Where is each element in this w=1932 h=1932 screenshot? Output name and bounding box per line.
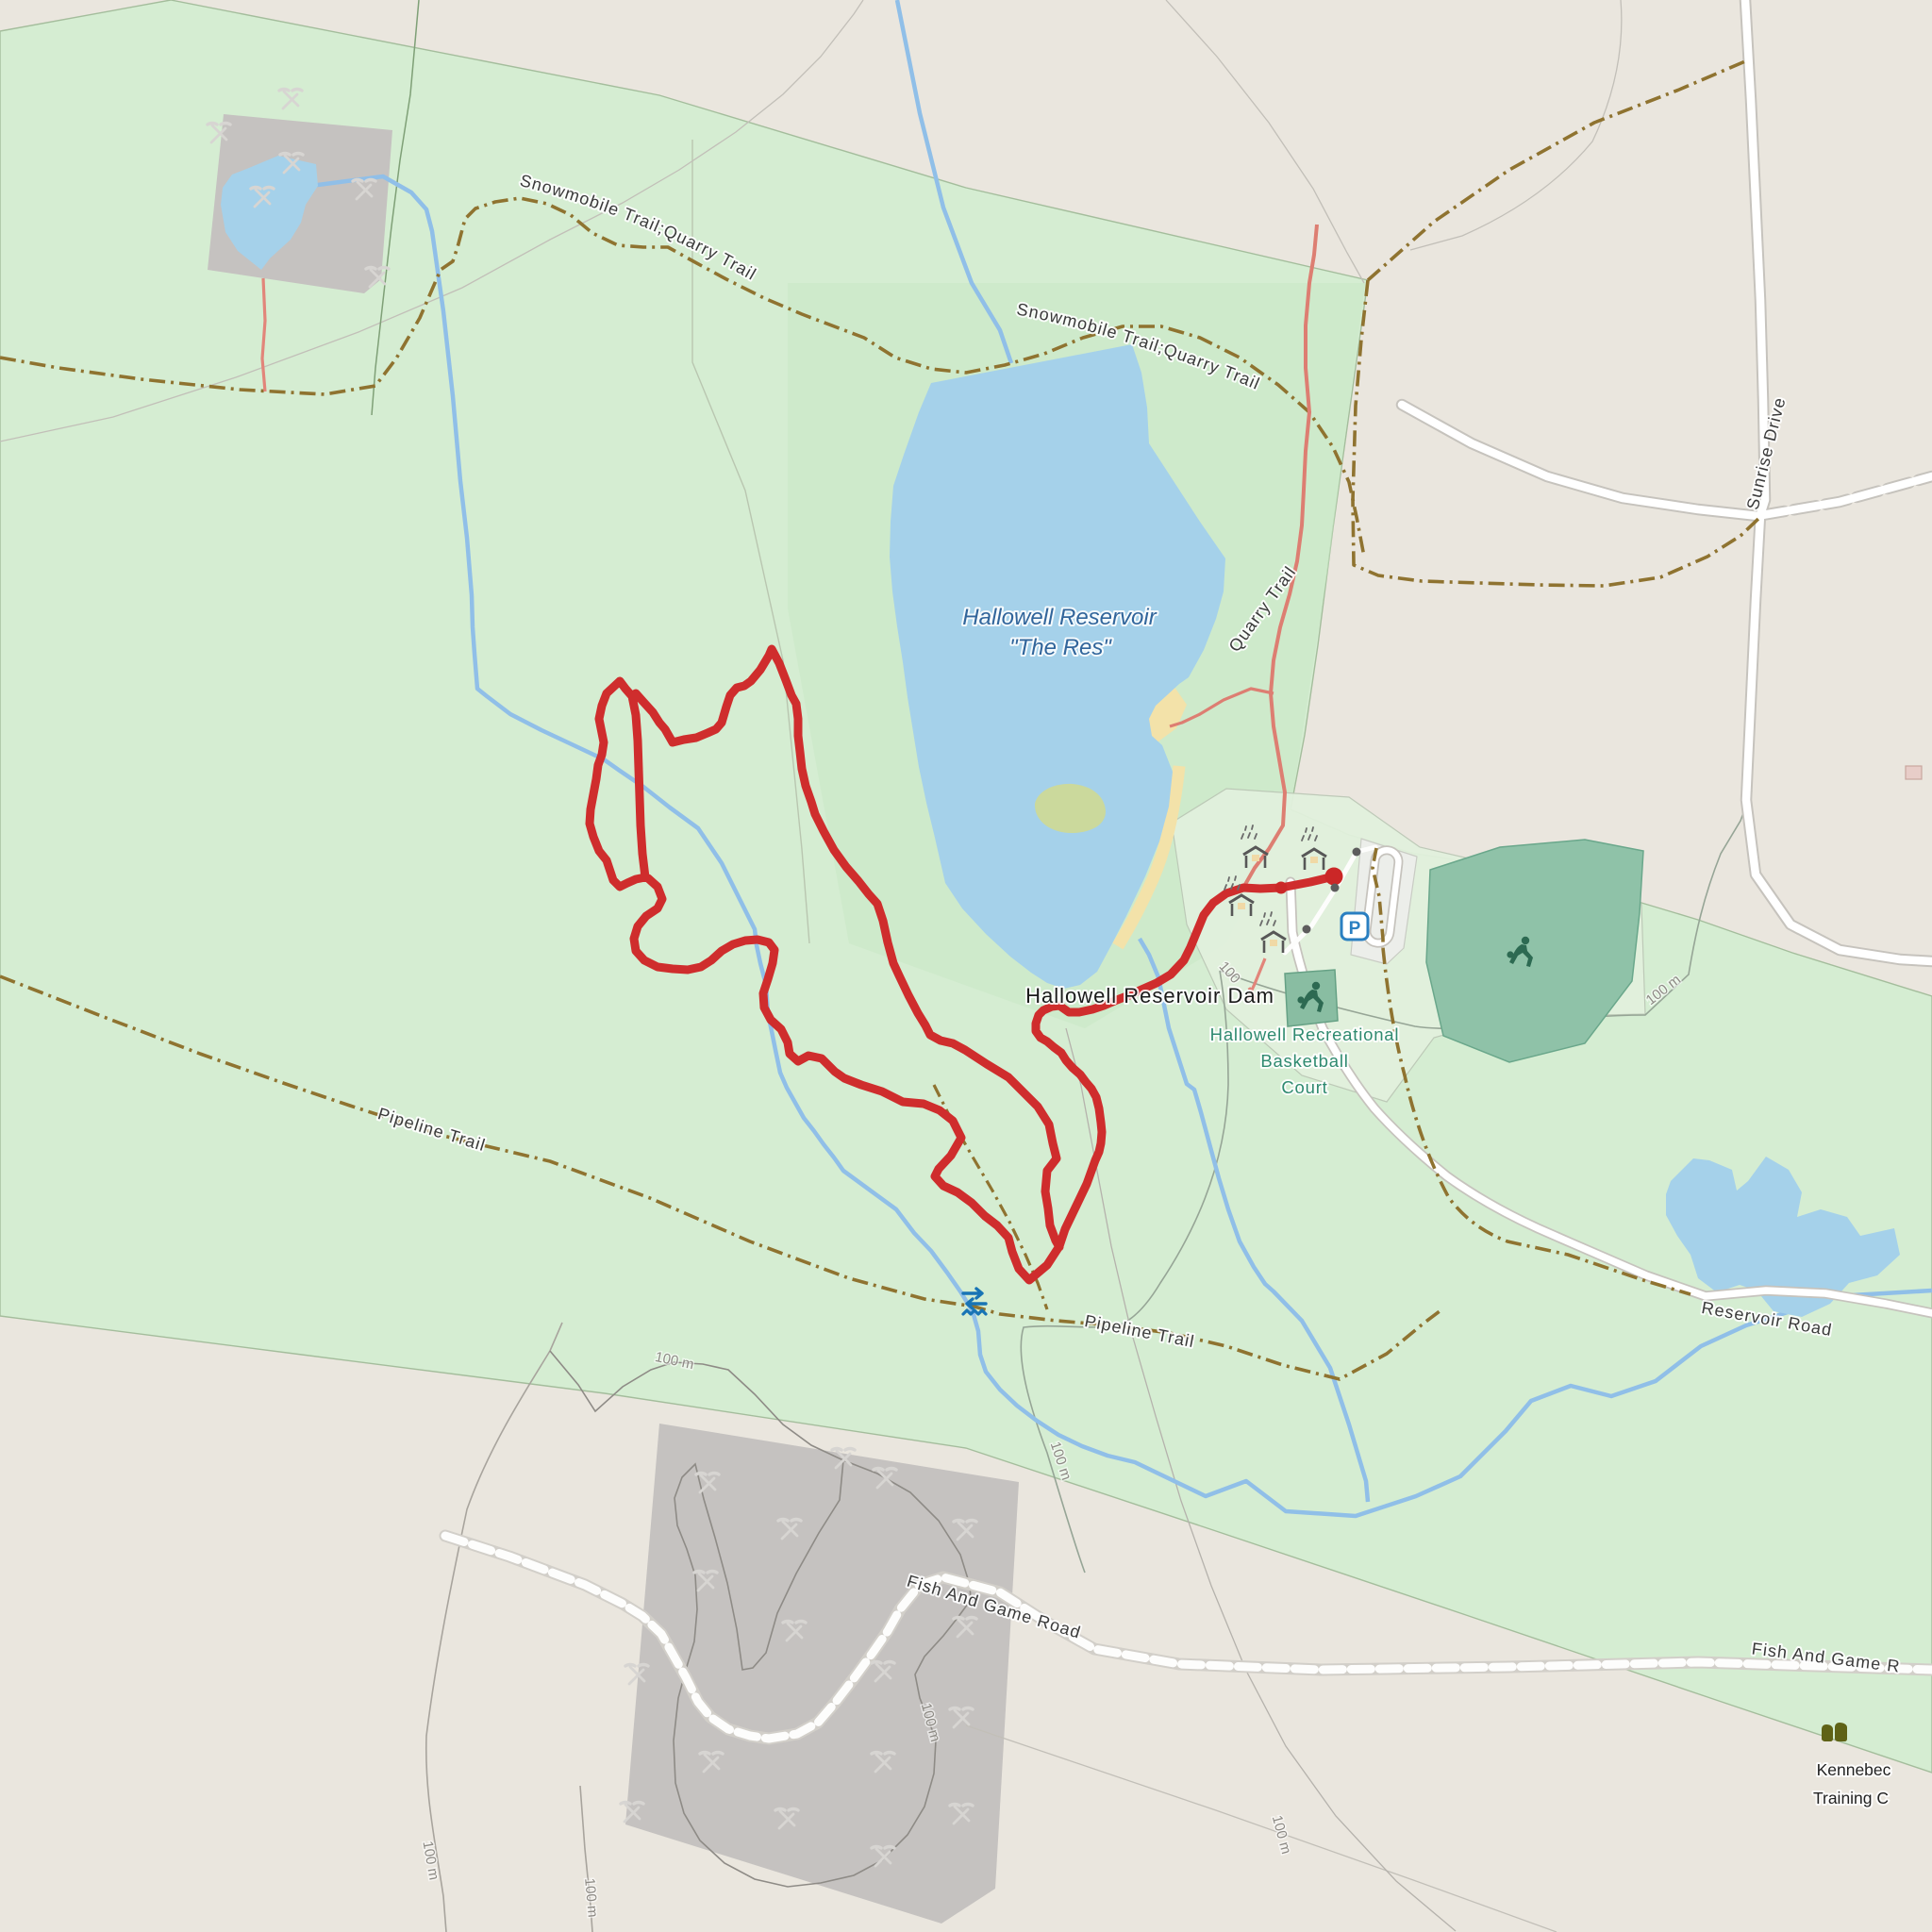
- svg-text:Training C: Training C: [1813, 1789, 1889, 1807]
- svg-text:P: P: [1349, 919, 1361, 939]
- svg-text:Hallowell Reservoir: Hallowell Reservoir: [962, 605, 1157, 630]
- svg-text:Basketball: Basketball: [1260, 1051, 1348, 1071]
- svg-text:Hallowell Recreational: Hallowell Recreational: [1210, 1024, 1400, 1044]
- svg-text:Hallowell Reservoir Dam: Hallowell Reservoir Dam: [1025, 984, 1274, 1008]
- svg-text:Kennebec: Kennebec: [1817, 1760, 1891, 1779]
- svg-text:100 m: 100 m: [581, 1877, 601, 1918]
- svg-text:Court: Court: [1281, 1077, 1327, 1097]
- svg-text:"The Res": "The Res": [1009, 635, 1112, 660]
